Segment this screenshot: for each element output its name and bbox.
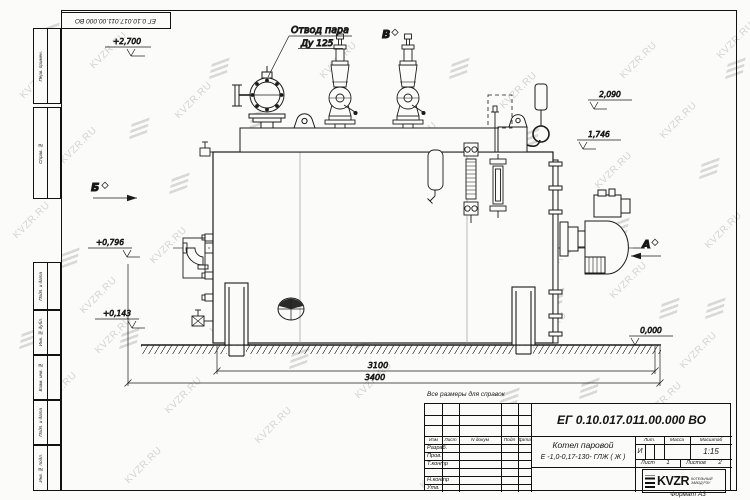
frame-cell-podp-data-1: Подп. и дата xyxy=(33,262,61,310)
steam-drum-platform xyxy=(240,127,527,152)
frame-cell-podp-data-2: Подп. и дата xyxy=(33,400,61,445)
level-mark-0143: +0,143 xyxy=(95,309,145,328)
logo-text: KVZR xyxy=(657,474,689,488)
sheet-value: 1 xyxy=(661,459,675,467)
product-name-line1: Котел паровой xyxy=(531,438,635,452)
frame-cell-label: Перв. примен. xyxy=(38,51,43,82)
level-mark-0000: 0,000 xyxy=(629,326,673,345)
frame-cell-label: Инв. № подл. xyxy=(38,454,43,483)
svg-text:В: В xyxy=(382,28,390,41)
col-list: Лист xyxy=(442,436,459,444)
frame-cell-label: Инв. № дубл. xyxy=(38,318,43,346)
sheets-label: Листов xyxy=(682,459,710,467)
sheets-value: 2 xyxy=(712,459,728,467)
svg-text:3400: 3400 xyxy=(365,373,385,382)
level-mark-0796: +0,796 xyxy=(88,238,140,257)
frame-cell-label: Подп. и дата xyxy=(38,408,43,437)
pressure-gauge-siphon xyxy=(527,84,549,146)
view-marker-a: А xyxy=(631,238,661,259)
svg-text:0,000: 0,000 xyxy=(640,326,662,335)
frame-cell-vzam-inv: Взам. инв. № xyxy=(33,355,61,400)
col-podp: Подп xyxy=(501,436,518,444)
col-ndokum: N докум xyxy=(459,436,501,444)
svg-text:Ду 125: Ду 125 xyxy=(300,39,334,49)
scale-value: 1:15 xyxy=(690,444,732,459)
burner-assembly xyxy=(558,189,651,274)
svg-text:+0,143: +0,143 xyxy=(103,309,131,318)
frame-cell-inv-podl: Инв. № подл. xyxy=(33,445,61,491)
watermark-text: KVZR.RU xyxy=(11,200,52,241)
reserved-connection-dashed xyxy=(488,95,512,128)
company-logo: KVZR КОТЕЛЬНЫЙ ЗАВОД РЭУ xyxy=(642,469,726,493)
svg-text:+0,796: +0,796 xyxy=(96,238,124,247)
view-marker-v: В xyxy=(382,28,398,41)
lit-value: И xyxy=(635,444,645,459)
title-block: ЕГ 0.10.017.011.00.000 ВО Изм Лист N док… xyxy=(424,403,731,491)
level-mark-1746: 1,746 xyxy=(577,130,621,149)
row-prov: Пров. xyxy=(426,453,442,459)
frame-cell-label: Взам. инв. № xyxy=(38,363,43,391)
safety-valve-2 xyxy=(393,34,425,128)
row-razrab: Разраб. xyxy=(426,445,447,451)
steam-outlet-valve xyxy=(232,66,285,128)
sheet-label: Лист xyxy=(637,459,659,467)
lifting-lug xyxy=(294,114,315,128)
frame-cell-label: Подп. и дата xyxy=(38,272,43,301)
frame-cell-perv-primen: Перв. примен. xyxy=(33,28,61,104)
left-wall-nozzles xyxy=(192,142,213,326)
view-marker-b: Б xyxy=(91,181,137,201)
ground-line xyxy=(141,345,661,357)
col-izm: Изм xyxy=(425,436,442,444)
water-level-gauge-1 xyxy=(464,143,478,223)
svg-text:2,090: 2,090 xyxy=(599,90,621,99)
row-nkontr: Н.контр xyxy=(426,477,449,483)
scale-header: Масштаб xyxy=(690,436,732,444)
frame-cell-label: Справ. № xyxy=(38,143,43,164)
svg-text:+2,700: +2,700 xyxy=(113,37,141,46)
logo-subtext-2: ЗАВОД РЭУ xyxy=(691,481,712,485)
svg-text:3100: 3100 xyxy=(368,361,388,370)
format-note: Формат А3 xyxy=(648,491,728,498)
mass-header: Масса xyxy=(664,436,690,444)
level-mark-2090: 2,090 xyxy=(588,90,632,109)
svg-text:Б: Б xyxy=(91,181,99,194)
lit-header: Лит. xyxy=(635,436,664,444)
product-name-line2: Е -1,0-0,17-130- ГЛЖ ( Ж ) xyxy=(531,451,635,464)
row-utv: Утв. xyxy=(426,485,440,491)
frame-cell-sprav-no: Справ. № xyxy=(33,107,61,199)
svg-text:А: А xyxy=(641,238,651,251)
doc-number: ЕГ 0.10.017.011.00.000 ВО xyxy=(531,404,732,436)
logo-coil-icon xyxy=(645,475,655,488)
drawing-sheet: KVZR.RUKVZR.RUKVZR.RUKVZR.RUKVZR.RUKVZR.… xyxy=(0,0,750,500)
svg-text:Отвод пара: Отвод пара xyxy=(291,25,349,36)
frame-cell-inv-dubl: Инв. № дубл. xyxy=(33,310,61,355)
col-data: Дата xyxy=(518,436,531,444)
level-mark-2700: +2,700 xyxy=(105,37,151,56)
svg-text:1,746: 1,746 xyxy=(588,130,610,139)
manhole xyxy=(278,298,304,320)
reference-note: Все размеры для справок xyxy=(427,391,505,398)
row-tkontr: Т.контр xyxy=(426,461,448,467)
